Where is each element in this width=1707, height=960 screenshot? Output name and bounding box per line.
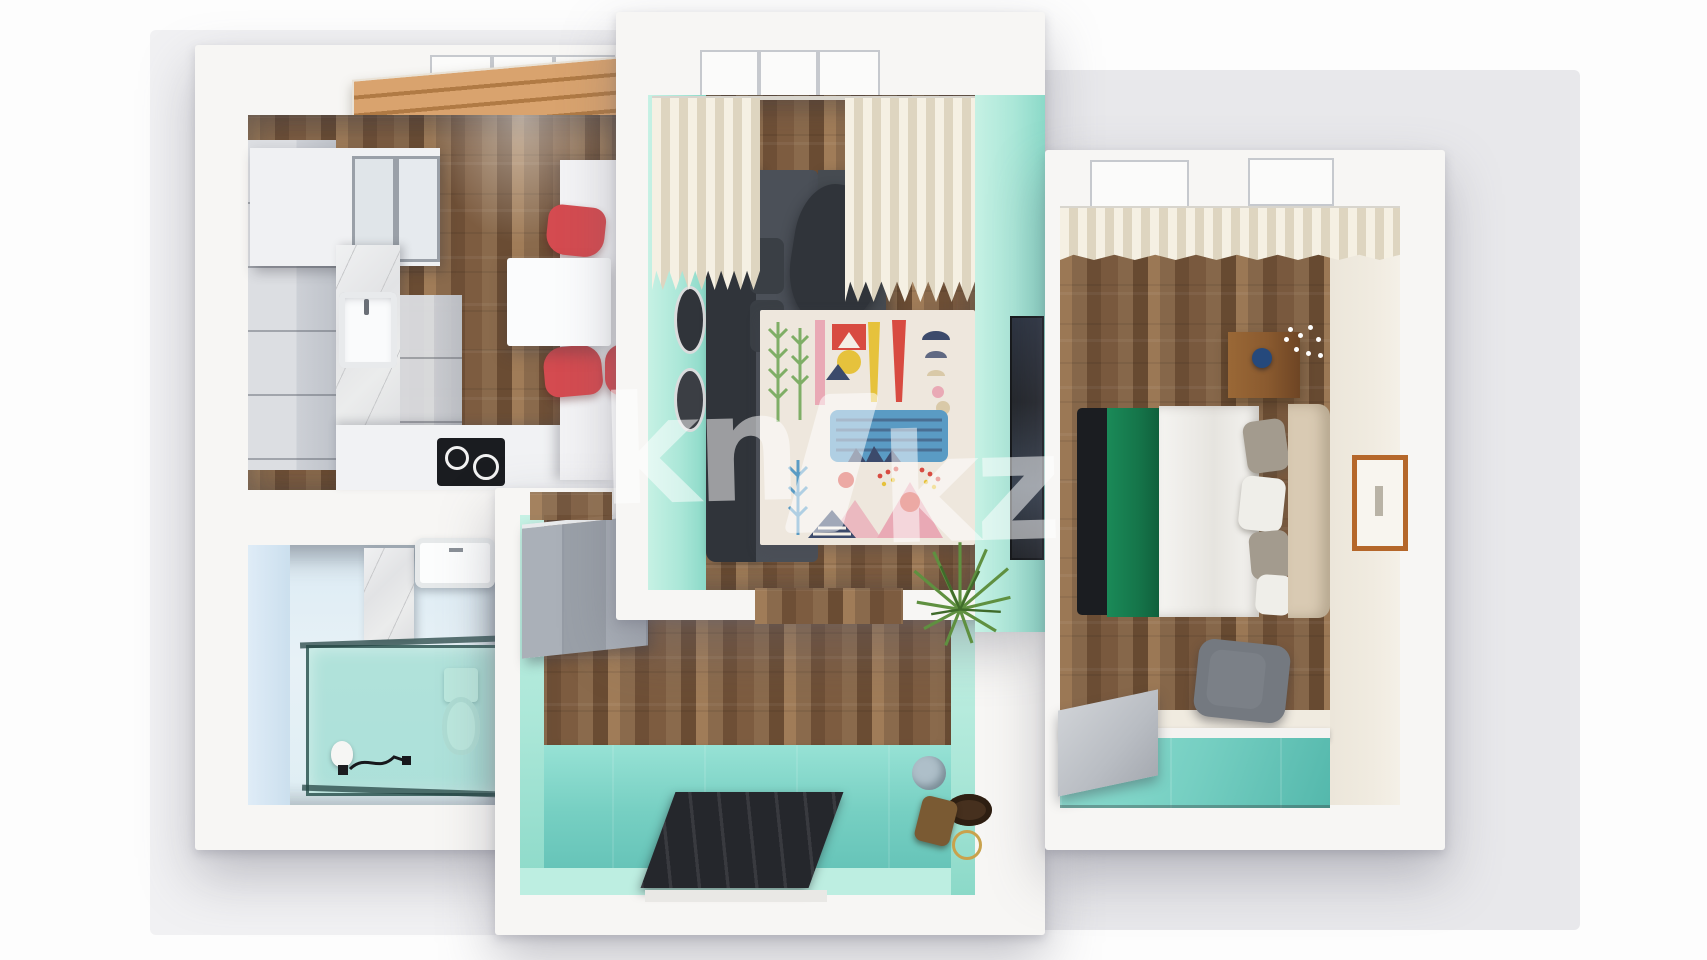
kitchen-cooktop (437, 438, 505, 486)
coat-rack (910, 750, 1000, 860)
bedroom-curtain (1060, 208, 1400, 260)
kitchen-lower-cabinet (400, 295, 462, 425)
lamp-cable-icon (348, 745, 412, 775)
bathroom-marble-panel (364, 548, 414, 640)
living-curtain-left (652, 98, 760, 290)
dining-chair (542, 344, 604, 399)
watermark-slash-icon (783, 393, 880, 534)
living-hall-opening-floor (755, 588, 903, 624)
floorplan-scene: kn kz (0, 0, 1707, 960)
picture-frame (1352, 455, 1408, 551)
bathroom-sink-drain (449, 548, 463, 552)
bedroom-room (1060, 215, 1400, 805)
kitchen-faucet (364, 299, 369, 315)
coat-ring (952, 830, 982, 860)
lamp-socket (338, 765, 348, 775)
cooktop-burner (473, 454, 499, 480)
living-curtain-right (845, 98, 975, 302)
bathroom-wall-left (248, 545, 290, 805)
coat-cap (912, 756, 946, 790)
entry-doormat (641, 792, 844, 888)
watermark-text-left: kn (598, 373, 798, 528)
kitchen-cabinet-glass-door (396, 156, 440, 262)
vase (1252, 348, 1272, 368)
bed-pillow (1242, 417, 1291, 474)
dining-chair (545, 203, 608, 259)
picture-frame-art (1375, 486, 1383, 516)
watermark: kn kz (598, 366, 1057, 528)
entry-threshold (645, 890, 827, 902)
bedroom-window (1248, 158, 1334, 206)
bed-blanket-black (1077, 408, 1107, 615)
wall-art-oval (674, 286, 706, 354)
bed-headboard (1288, 404, 1330, 618)
bathroom-sink (415, 538, 495, 588)
cooktop-burner (445, 446, 469, 470)
kitchen-room (248, 115, 616, 490)
dining-table (507, 258, 611, 346)
bedroom-block (1045, 150, 1445, 850)
bed-blanket-green (1107, 408, 1159, 617)
bathroom-room (248, 545, 495, 805)
bedroom-window (1090, 160, 1189, 212)
bed-pillow (1237, 475, 1286, 533)
watermark-text-right: kz (878, 412, 1059, 567)
kitchen-hall-doorway-floor (530, 492, 612, 520)
desk-chair (1192, 637, 1292, 724)
desk-chair-seat (1205, 649, 1267, 711)
flower-sprig (1288, 327, 1293, 332)
bed-pillow (1248, 529, 1292, 580)
